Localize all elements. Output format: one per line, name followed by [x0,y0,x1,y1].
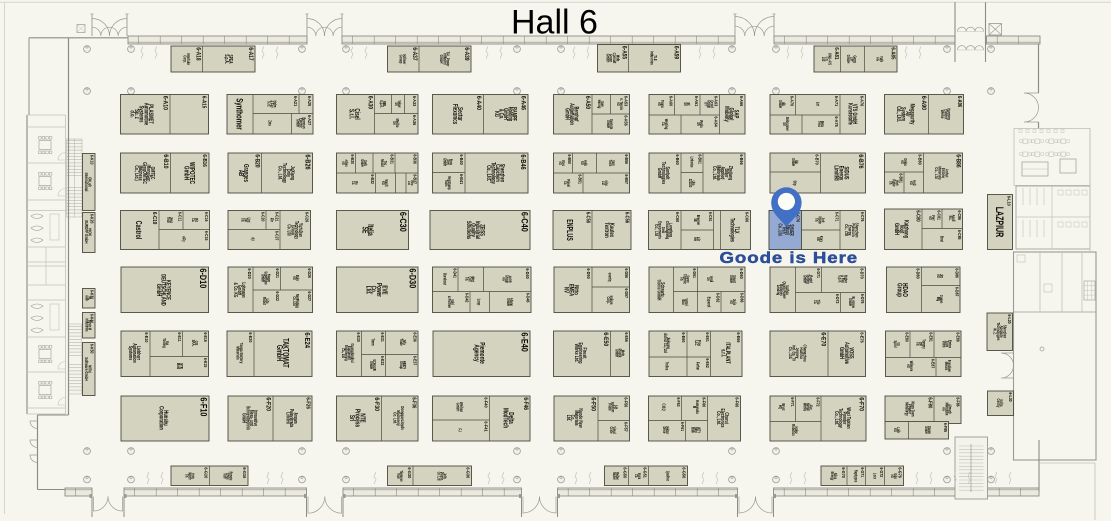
svg-text:Group: Group [399,361,404,370]
svg-text:Co., Ltd.: Co., Ltd. [485,165,492,181]
svg-text:Solutions: Solutions [464,221,471,239]
svg-text:6-A66: 6-A66 [739,96,745,107]
svg-text:Limited: Limited [285,412,291,424]
svg-text:6-D10: 6-D10 [198,268,208,288]
svg-text:6-A60: 6-A60 [668,96,674,107]
svg-text:6-A81: 6-A81 [833,47,840,59]
svg-text:GmbH: GmbH [802,275,807,283]
svg-text:Ltd: Ltd [821,57,826,62]
svg-text:6-B86: 6-B86 [954,154,961,167]
svg-text:6-D42: 6-D42 [464,293,470,303]
svg-text:6-B36: 6-B36 [412,154,418,164]
svg-text:Zeta: Zeta [267,120,272,126]
svg-text:Vidro: Vidro [941,341,946,348]
svg-text:6-E76: 6-E76 [859,332,865,343]
svg-text:6-C11: 6-C11 [177,212,183,222]
svg-text:Flexonics: Flexonics [451,104,458,125]
svg-text:Metals: Metals [944,362,949,370]
svg-text:6-F63: 6-F63 [676,397,682,407]
svg-text:Trade: Trade [399,338,404,345]
svg-text:6-A56: 6-A56 [623,115,629,126]
svg-text:Sprol: Sprol [893,341,898,348]
svg-text:GmbH: GmbH [442,158,447,166]
svg-text:6-B30: 6-B30 [350,154,356,164]
svg-text:Co., Ltd.): Co., Ltd.) [134,165,140,181]
svg-text:6-F46: 6-F46 [522,397,529,410]
svg-text:6-F70: 6-F70 [857,397,864,411]
svg-text:dji: dji [250,237,255,240]
svg-text:6-C20: 6-C20 [260,212,266,222]
svg-text:Mobility: Mobility [723,106,730,121]
svg-text:GmbH: GmbH [848,298,853,306]
svg-text:6-A37: 6-A37 [411,47,418,60]
svg-text:6-A27: 6-A27 [307,115,313,126]
svg-text:6-E70: 6-E70 [819,332,826,346]
svg-text:AG: AG [616,102,621,106]
svg-text:6-B66: 6-B66 [739,154,745,165]
svg-text:6-C16: 6-C16 [204,212,210,222]
svg-text:6-B10: 6-B10 [162,154,169,169]
svg-text:6-A50: 6-A50 [584,96,591,109]
svg-text:Co.: Co. [813,300,818,304]
svg-text:6-D72: 6-D72 [835,294,841,304]
svg-text:6-F85: 6-F85 [943,423,949,433]
svg-text:6-A71: 6-A71 [834,96,840,107]
svg-text:Tools: Tools [444,180,449,187]
svg-text:6-L30: 6-L30 [1008,392,1014,402]
svg-text:6-B37: 6-B37 [412,174,418,184]
svg-text:6-C15: 6-C15 [204,231,210,241]
svg-text:6-G50: 6-G50 [622,467,628,478]
svg-text:Kunststoffe: Kunststoffe [846,103,853,125]
svg-text:6-A64: 6-A64 [713,116,719,127]
svg-text:Aulk: Aulk [84,295,89,301]
svg-text:6-G36: 6-G36 [465,467,471,478]
svg-text:Tech: Tech [396,473,401,479]
svg-text:KG: KG [493,111,500,117]
svg-text:GmbH: GmbH [893,223,900,235]
svg-text:6-C76: 6-C76 [860,212,866,222]
svg-text:6-A85: 6-A85 [889,47,896,59]
svg-text:Group: Group [895,283,903,297]
svg-text:Corp.: Corp. [183,55,188,63]
svg-text:GmbH: GmbH [657,168,663,179]
svg-text:Co., Ltd.: Co., Ltd. [895,106,902,122]
svg-text:Co.: Co. [661,122,666,126]
svg-text:Castrol: Castrol [134,221,144,240]
svg-text:6-A21: 6-A21 [293,96,299,107]
svg-text:Intl: Intl [816,237,821,241]
svg-text:AG: AG [941,407,946,411]
svg-text:Co., Ltd.: Co., Ltd. [834,411,840,425]
svg-text:6-K10: 6-K10 [89,155,95,165]
svg-text:Flir: Flir [269,218,274,223]
svg-text:6-E62: 6-E62 [705,358,711,368]
svg-text:6-E37: 6-E37 [412,356,418,366]
svg-text:Bau: Bau [681,299,686,304]
svg-text:Tools: Tools [608,160,613,167]
svg-text:Mold: Mold [176,363,181,369]
svg-text:Co., Ltd.: Co., Ltd. [276,166,283,181]
svg-text:Corp.: Corp. [606,296,611,303]
svg-text:Materials: Materials [235,346,241,360]
svg-text:C11Q: C11Q [661,403,666,410]
svg-text:6-C40: 6-C40 [519,212,529,232]
svg-text:GmbH: GmbH [260,274,265,282]
svg-text:GmbH: GmbH [274,345,284,361]
svg-text:EUROFF GmbH: EUROFF GmbH [84,220,90,243]
svg-text:6-B31: 6-B31 [389,154,395,164]
svg-text:GmbH: GmbH [241,413,247,423]
svg-text:6-E31: 6-E31 [380,332,386,342]
svg-text:Srl: Srl [782,122,787,126]
svg-text:GmbH: GmbH [838,347,845,359]
svg-text:6-D70: 6-D70 [859,268,865,279]
svg-text:Co., Ltd: Co., Ltd [934,167,940,179]
svg-text:6-B81: 6-B81 [898,173,904,183]
svg-text:6-D66: 6-D66 [739,293,745,303]
svg-text:6-B32: 6-B32 [370,174,376,184]
svg-text:GmbH: GmbH [506,298,511,306]
svg-text:6-F72: 6-F72 [815,397,821,407]
svg-text:6-F50: 6-F50 [589,397,596,411]
svg-text:6-B26: 6-B26 [303,154,311,170]
svg-text:district Co., Ltd: district Co., Ltd [663,333,668,353]
svg-text:SE: SE [693,218,698,222]
svg-text:Tech: Tech [222,473,227,479]
svg-text:Rapitypes: Rapitypes [853,470,858,482]
svg-text:6-C56: 6-C56 [624,212,630,224]
svg-text:Haring: Haring [597,100,602,109]
svg-text:222333: 222333 [688,179,693,188]
svg-text:6-C85: 6-C85 [957,230,963,240]
svg-text:6-E40: 6-E40 [519,332,529,352]
svg-text:Metallurgy: Metallurgy [904,402,909,415]
svg-text:6-A61: 6-A61 [694,96,700,107]
svg-text:Leading: Leading [776,285,781,295]
svg-text:GmbH: GmbH [924,426,929,434]
svg-text:Systems: Systems [128,346,134,361]
svg-text:Big: Big [936,297,941,301]
svg-text:6-C30: 6-C30 [398,212,408,232]
svg-text:6-D71: 6-D71 [816,268,822,278]
svg-text:Ltd.: Ltd. [566,415,572,421]
svg-text:GmbH: GmbH [456,403,461,412]
svg-text:GmbH: GmbH [606,120,611,128]
svg-text:6-E56: 6-E56 [624,332,630,342]
svg-text:6-A39: 6-A39 [463,47,470,60]
svg-text:SA: SA [696,122,701,126]
svg-text:6-F26: 6-F26 [304,397,311,409]
svg-text:6-D61: 6-D61 [692,268,698,278]
svg-text:Technologies: Technologies [728,218,735,242]
svg-text:KG: KG [909,181,914,185]
svg-text:6-D30: 6-D30 [407,268,417,288]
svg-text:Ltd.: Ltd. [364,286,372,295]
svg-text:6-E60: 6-E60 [681,332,687,343]
svg-text:Co., Ltd.: Co., Ltd. [788,347,794,360]
svg-text:6-F80: 6-F80 [927,397,933,408]
svg-text:Co. Ltd: Co. Ltd [286,224,292,236]
svg-text:6-G16: 6-G16 [242,467,248,478]
svg-text:6-B46: 6-B46 [519,154,527,170]
svg-text:Synthomer: Synthomer [234,98,245,130]
svg-text:AG: AG [928,216,933,220]
svg-text:6-D50: 6-D50 [586,268,592,279]
svg-text:6-B57: 6-B57 [624,174,630,184]
svg-text:6-F10: 6-F10 [198,397,208,416]
svg-text:Srl: Srl [348,415,356,421]
svg-text:KG: KG [381,181,386,185]
svg-text:Lot: Lot [815,102,820,107]
svg-text:M: M [692,406,697,408]
svg-text:6-D41: 6-D41 [452,268,458,278]
svg-text:6-E30: 6-E30 [356,332,362,342]
svg-text:6-K20: 6-K20 [89,214,95,224]
svg-text:Co., Ltd: Co., Ltd [341,348,346,358]
svg-text:6-E24: 6-E24 [303,332,311,348]
svg-text:Co.: Co. [634,474,639,478]
svg-text:NV: NV [562,287,569,293]
svg-text:& Partner: & Partner [447,296,452,309]
svg-text:6-G30: 6-G30 [407,467,413,478]
svg-text:& Co. KG: & Co. KG [233,283,239,298]
svg-text:S.p.A.: S.p.A. [379,100,384,108]
svg-text:trionic GmbH: trionic GmbH [656,280,662,301]
svg-text:6-G72: 6-G72 [879,467,885,477]
svg-text:Tech: Tech [166,217,171,223]
svg-text:6-G76: 6-G76 [897,467,903,478]
svg-text:Timm: Timm [370,338,375,345]
svg-text:AG: AG [341,161,346,165]
svg-text:6-L10: 6-L10 [1006,196,1012,206]
svg-text:Co.: Co. [464,277,469,281]
svg-text:Co., Ltd.: Co., Ltd. [712,166,718,180]
svg-text:6-A63: 6-A63 [713,96,719,107]
svg-text:6-E80: 6-E80 [904,332,910,342]
svg-text:6-A18: 6-A18 [194,47,201,60]
svg-text:Co.: Co. [563,181,568,185]
svg-text:6-F66: 6-F66 [734,397,740,407]
svg-text:eFly: eFly [181,236,186,241]
svg-text:6-E36: 6-E36 [412,332,418,342]
svg-text:6-F36: 6-F36 [411,397,417,408]
svg-text:6-D40: 6-D40 [525,268,531,279]
svg-text:AG: AG [890,474,895,478]
svg-text:SE: SE [360,227,368,234]
svg-text:Co., Ltd.: Co., Ltd. [716,411,722,425]
svg-text:6-B56: 6-B56 [624,154,630,164]
svg-text:6-E81: 6-E81 [928,332,934,342]
svg-text:6-E15: 6-E15 [203,358,209,368]
svg-text:Qualitec: Qualitec [665,471,670,481]
svg-text:Agency: Agency [472,344,480,362]
svg-text:AG: AG [900,160,905,164]
svg-text:Co.: Co. [351,181,356,185]
svg-text:Energy: Energy [830,472,835,481]
svg-text:Co.: Co. [191,218,196,222]
svg-text:Co.: Co. [679,277,684,281]
svg-text:6-D21: 6-D21 [275,268,281,278]
svg-text:GmbH: GmbH [614,349,619,357]
svg-text:Bost: Bost [939,236,944,243]
svg-text:AG: AG [936,274,941,278]
svg-text:6-D87: 6-D87 [954,287,960,297]
svg-text:Co.: Co. [888,181,893,185]
svg-text:6-C80: 6-C80 [915,210,921,222]
svg-text:Co. Ltd.: Co. Ltd. [392,412,398,424]
svg-text:6-E16: 6-E16 [203,332,209,342]
svg-text:S.r.l.: S.r.l. [266,101,271,107]
svg-text:6-F30: 6-F30 [373,397,380,411]
svg-text:Goode is Here: Goode is Here [720,248,859,266]
svg-text:6-F57: 6-F57 [623,422,629,432]
svg-text:Textron: Textron [603,222,610,238]
svg-text:Inc.: Inc. [948,216,953,221]
svg-text:Trelles: Trelles [664,362,669,371]
svg-text:6-C66: 6-C66 [744,212,750,223]
svg-text:s.r.l.: s.r.l. [719,349,726,357]
svg-text:S.p.A.: S.p.A. [837,275,842,283]
svg-text:6-B16: 6-B16 [201,154,208,167]
svg-text:6-F60: 6-F60 [701,397,707,407]
svg-text:6-C50: 6-C50 [585,212,591,224]
svg-text:6-A59: 6-A59 [672,46,679,59]
svg-text:Industries: Industries [84,319,89,332]
svg-text:GmbH: GmbH [369,361,374,369]
svg-text:6-C60: 6-C60 [675,212,681,223]
svg-text:6-A46: 6-A46 [519,96,526,111]
svg-text:6-B60: 6-B60 [675,154,681,165]
svg-text:6-A36: 6-A36 [412,115,418,126]
svg-text:6-E20: 6-E20 [248,332,254,343]
svg-text:6-A55: 6-A55 [620,46,627,59]
svg-text:6-G10: 6-G10 [203,467,209,478]
svg-text:SA: SA [706,277,711,281]
svg-text:6-A53: 6-A53 [623,96,629,107]
svg-text:6-D86: 6-D86 [954,268,960,278]
svg-text:6-G51: 6-G51 [642,467,648,478]
svg-text:6-A40: 6-A40 [475,96,482,111]
svg-text:AG: AG [729,300,734,304]
svg-text:6-D22: 6-D22 [275,291,281,301]
svg-text:HQ: HQ [778,405,783,409]
svg-text:AG: AG [657,102,662,106]
svg-text:AG: AG [558,161,563,165]
svg-text:6-C71: 6-C71 [834,212,840,222]
svg-text:Paste: Paste [607,403,612,410]
svg-text:6-F40: 6-F40 [483,397,489,408]
svg-text:AG: AG [501,277,506,281]
svg-text:Stip: Stip [792,180,797,186]
svg-text:FJ: FJ [457,428,462,431]
svg-text:6-E66: 6-E66 [736,332,742,343]
svg-text:6-F86: 6-F86 [955,397,961,407]
svg-text:6-F71: 6-F71 [790,397,796,407]
svg-text:Software GmbH: Software GmbH [84,357,90,381]
svg-text:Works Ltd.: Works Ltd. [572,344,579,363]
svg-text:6-A10: 6-A10 [161,96,168,111]
svg-text:6-D27: 6-D27 [307,291,313,301]
svg-text:6-B76: 6-B76 [857,154,864,169]
svg-text:6-B51: 6-B51 [577,174,583,184]
svg-text:6-E87: 6-E87 [930,359,936,369]
svg-text:6-C26: 6-C26 [304,212,310,223]
svg-text:AB: AB [237,170,244,176]
svg-text:W. Z.: W. Z. [992,328,997,335]
svg-text:evertiq: evertiq [607,273,612,282]
svg-text:6-F41: 6-F41 [483,421,489,432]
svg-text:6-D76: 6-D76 [860,294,866,304]
svg-text:GmbH: GmbH [155,284,162,296]
svg-text:Werke: Werke [940,110,945,119]
svg-text:Durabost: Durabost [442,273,447,285]
svg-text:Industries: Industries [650,51,655,65]
svg-text:GmbH: GmbH [295,119,300,127]
svg-text:Loop: Loop [476,299,481,306]
svg-text:Robotics: Robotics [791,424,796,436]
svg-text:GmbH: GmbH [360,159,365,167]
svg-text:Hall 6: Hall 6 [511,4,598,42]
svg-text:6-K30: 6-K30 [89,290,93,299]
svg-text:S.r.l.: S.r.l. [347,109,355,119]
svg-text:GmbH: GmbH [563,108,570,120]
svg-text:GmbH: GmbH [778,100,783,108]
svg-text:6-C61: 6-C61 [708,212,714,222]
svg-text:Limited: Limited [832,165,839,181]
svg-text:6-B50: 6-B50 [567,154,573,164]
svg-text:Mould: Mould [380,159,385,167]
svg-text:ModTech: ModTech [501,408,509,428]
svg-text:Tess: Tess [817,121,822,127]
svg-text:6-B40: 6-B40 [459,154,465,165]
svg-text:6-D60: 6-D60 [739,268,745,279]
svg-text:Co. Ltd: Co. Ltd [436,472,441,481]
svg-text:6-E11: 6-E11 [177,332,183,342]
svg-text:Tooling: Tooling [162,338,167,348]
svg-text:6-A76: 6-A76 [859,96,865,107]
svg-text:KG: KG [893,428,898,432]
svg-text:Co., Ltd.: Co., Ltd. [777,223,783,236]
svg-text:Am: Am [693,237,698,241]
svg-text:Espanol: Espanol [706,297,711,307]
svg-text:6-B61: 6-B61 [697,154,703,164]
svg-text:o.o.: o.o. [128,110,135,118]
svg-text:6-E50: 6-E50 [602,332,609,346]
svg-text:International: International [84,173,90,192]
svg-text:KG: KG [580,161,585,165]
svg-text:AG: AG [906,364,911,368]
svg-text:6-A96: 6-A96 [957,96,963,108]
svg-text:6-E32: 6-E32 [380,356,386,366]
svg-text:6-A70: 6-A70 [789,96,795,107]
svg-text:LLC: LLC [694,340,699,346]
svg-text:6-A33: 6-A33 [412,96,418,107]
svg-text:6-C86: 6-C86 [957,210,963,220]
svg-text:6-F56: 6-F56 [623,397,629,407]
svg-text:GmbH: GmbH [846,55,851,64]
svg-text:6-A90: 6-A90 [920,96,927,111]
svg-text:6-E86: 6-E86 [955,332,961,342]
svg-text:SA: SA [392,121,397,125]
svg-text:Co.: Co. [184,474,189,478]
svg-text:Drive: Drive [662,427,667,434]
svg-text:6-G70: 6-G70 [841,467,847,478]
svg-text:6-B70: 6-B70 [814,154,820,165]
svg-text:6-D62: 6-D62 [715,293,721,303]
svg-text:Srl: Srl [683,102,688,106]
svg-text:6-K50: 6-K50 [89,344,95,354]
